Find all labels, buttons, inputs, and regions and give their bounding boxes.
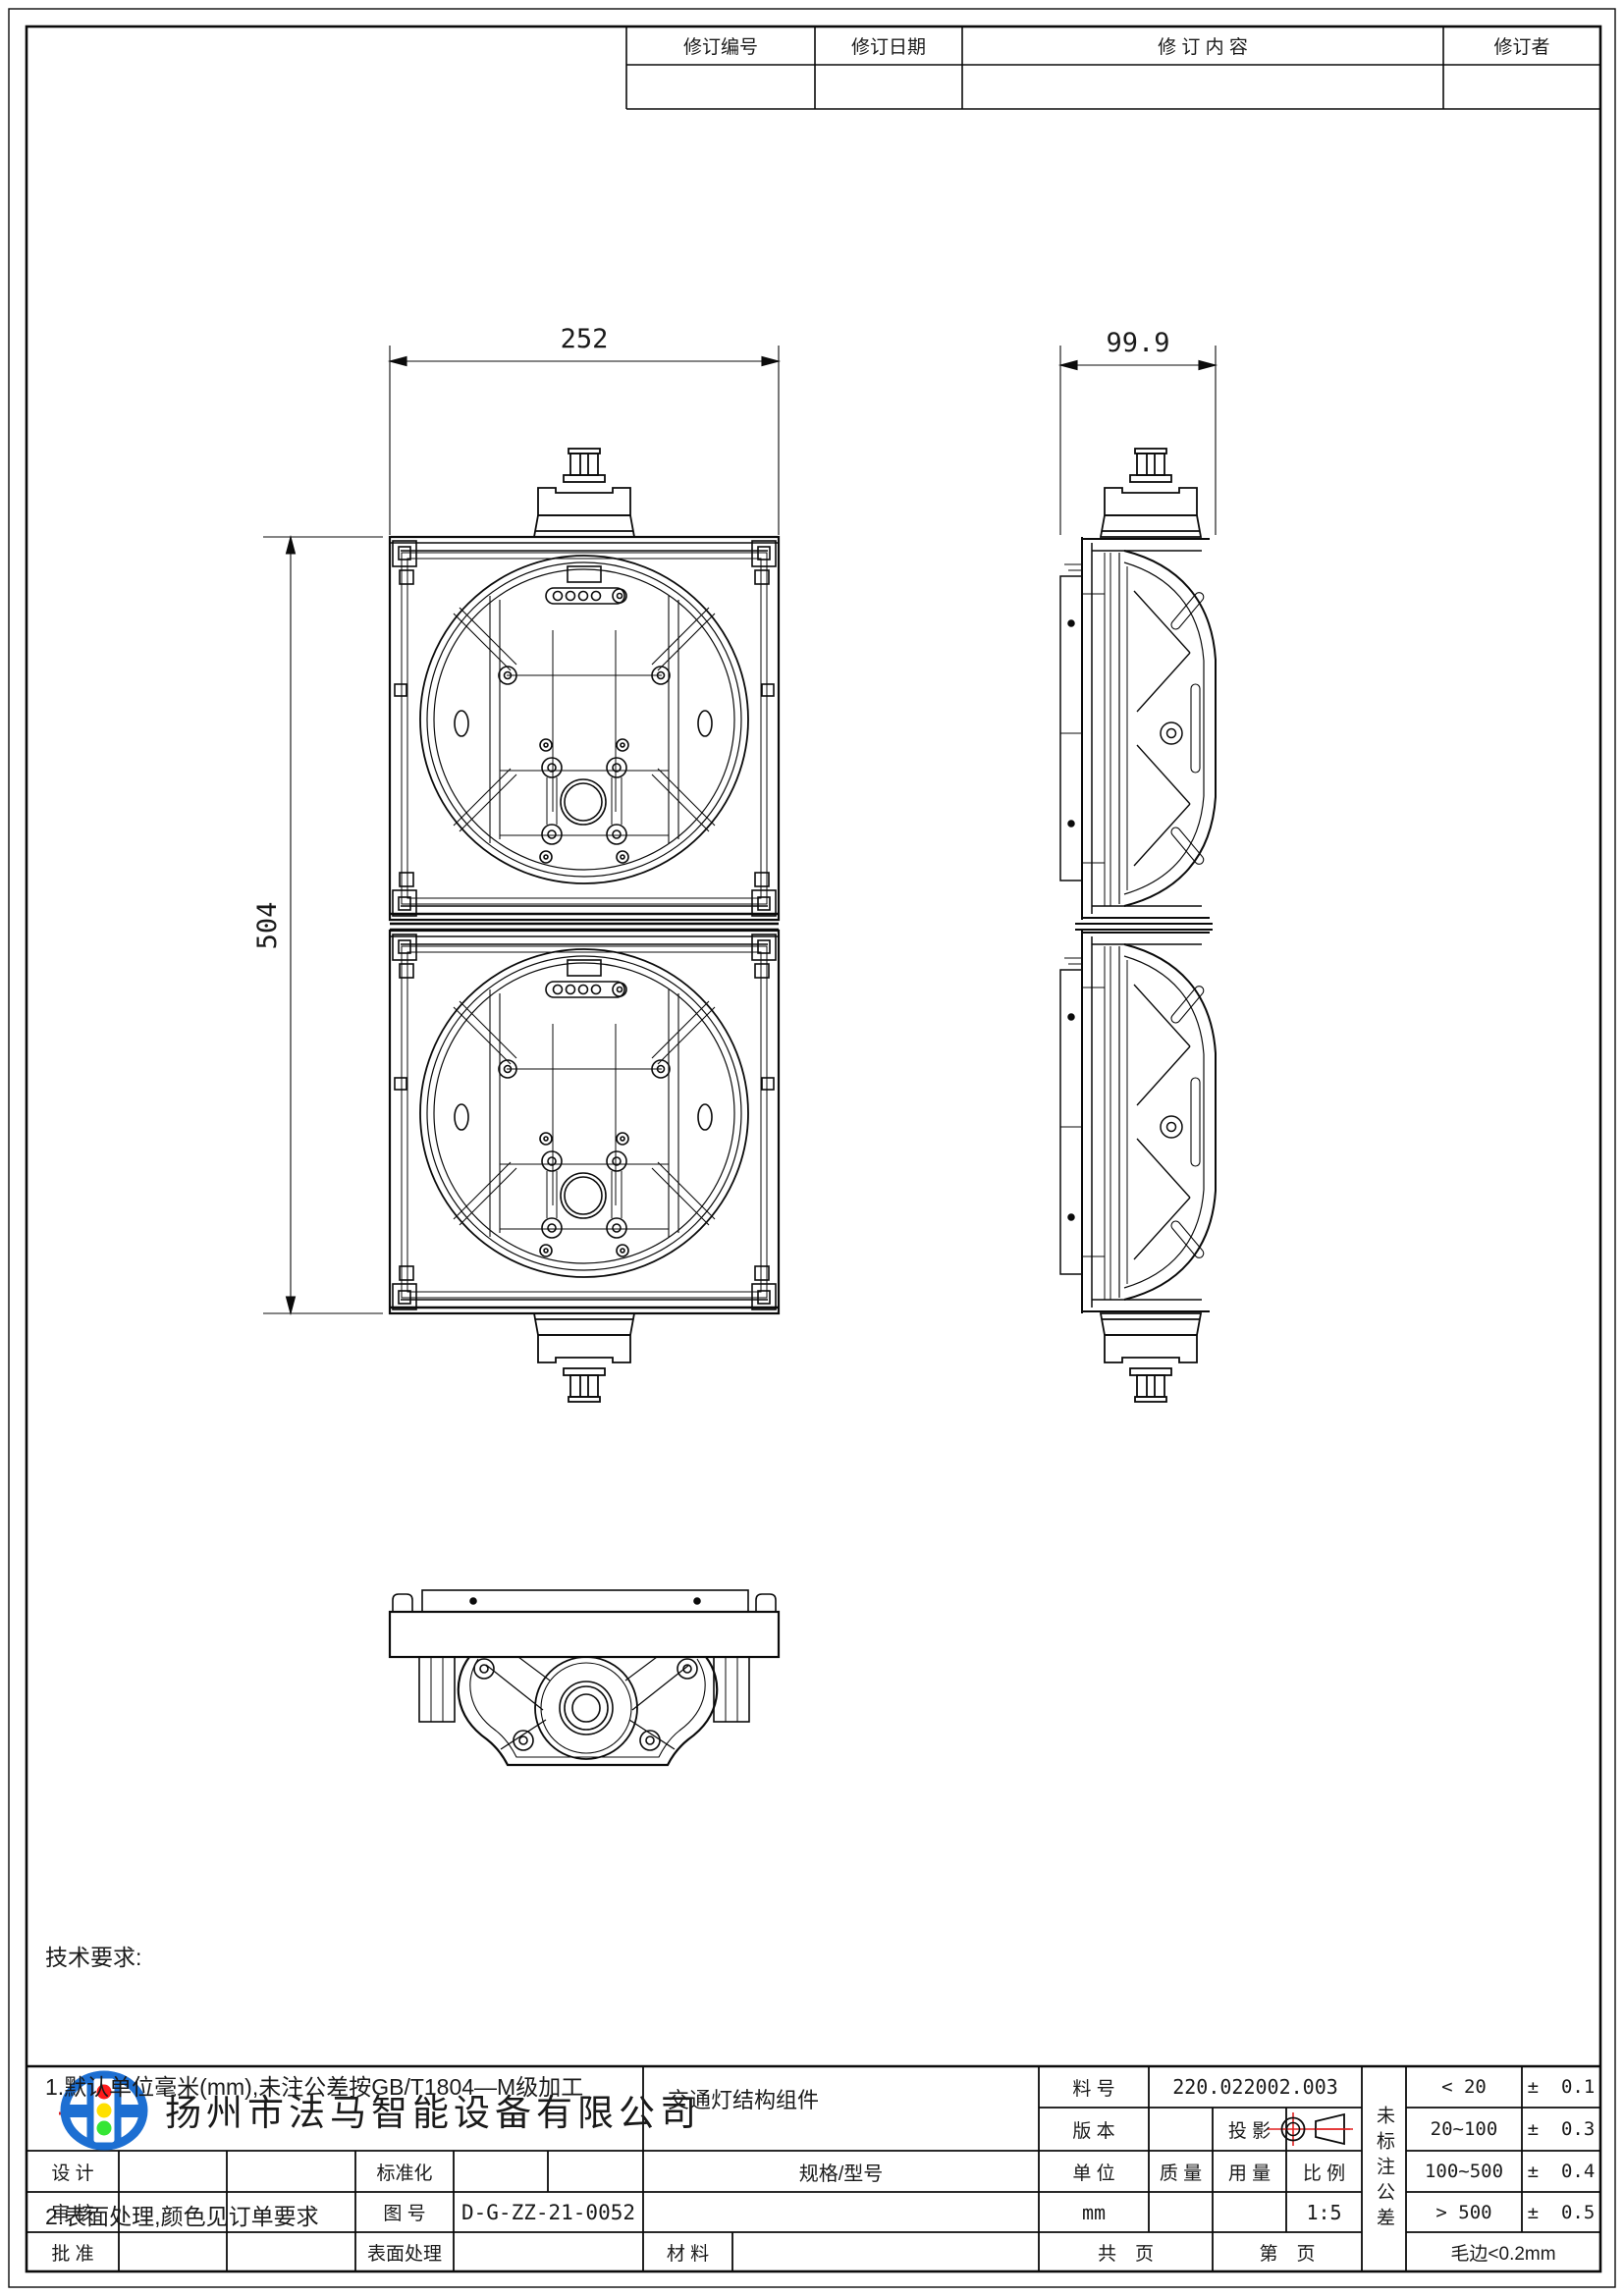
tolerance-range: < 20 (1406, 2066, 1522, 2108)
tech-requirements-title: 技术要求: (45, 1936, 699, 1979)
tolerance-value: ± 0.3 (1522, 2108, 1600, 2151)
dim-front-width: 252 (545, 324, 623, 353)
standardization-label: 标准化 (355, 2151, 454, 2192)
untoleranced-title: 未标注公差 (1362, 2066, 1406, 2271)
tolerance-range: > 500 (1406, 2192, 1522, 2232)
part-no-value: 220.022002.003 (1149, 2066, 1362, 2108)
tolerance-value: ± 0.5 (1522, 2192, 1600, 2232)
dim-side-depth: 99.9 (1089, 328, 1187, 357)
part-no-label: 料 号 (1039, 2066, 1149, 2108)
tolerance-value: ± 0.1 (1522, 2066, 1600, 2108)
scale-label: 比 例 (1286, 2151, 1362, 2192)
scale-value: 1:5 (1286, 2192, 1362, 2232)
side-view (1060, 449, 1216, 1402)
revision-no-header: 修订编号 (626, 27, 815, 65)
drawing-no-value: D-G-ZZ-21-0052 (461, 2192, 643, 2232)
company-name: 扬州市法马智能设备有限公司 (165, 2074, 636, 2145)
front-view (390, 449, 779, 1402)
tolerance-range: 100~500 (1406, 2151, 1522, 2192)
approve-label: 批 准 (27, 2232, 119, 2271)
revision-date-header: 修订日期 (815, 27, 962, 65)
engineering-drawing-page: 修订编号 修订日期 修 订 内 容 修订者 252 99.9 504 技术要求:… (0, 0, 1624, 2296)
revision-by-header: 修订者 (1443, 27, 1600, 65)
version-label: 版 本 (1039, 2108, 1149, 2151)
total-pages-label: 共 页 (1039, 2232, 1213, 2271)
projection-label: 投 影 (1213, 2108, 1286, 2151)
dim-front-height: 504 (252, 886, 282, 965)
unit-value: mm (1039, 2192, 1149, 2232)
design-label: 设 计 (27, 2151, 119, 2192)
page-label: 第 页 (1213, 2232, 1362, 2271)
review-label: 审 核 (27, 2192, 119, 2232)
material-label: 材 料 (643, 2232, 732, 2271)
tolerance-range: 20~100 (1406, 2108, 1522, 2151)
tolerance-value: ± 0.4 (1522, 2151, 1600, 2192)
unit-label: 单 位 (1039, 2151, 1149, 2192)
surface-treatment-label: 表面处理 (355, 2232, 454, 2271)
burr-note: 毛边<0.2mm (1406, 2232, 1600, 2271)
spec-model-label: 规格/型号 (643, 2151, 1039, 2192)
revision-content-header: 修 订 内 容 (962, 27, 1443, 65)
usage-label: 用 量 (1213, 2151, 1286, 2192)
drawing-no-label: 图 号 (355, 2192, 454, 2232)
bottom-view (390, 1590, 779, 1765)
part-name: 交通灯结构组件 (668, 2083, 819, 2114)
mass-label: 质 量 (1149, 2151, 1213, 2192)
